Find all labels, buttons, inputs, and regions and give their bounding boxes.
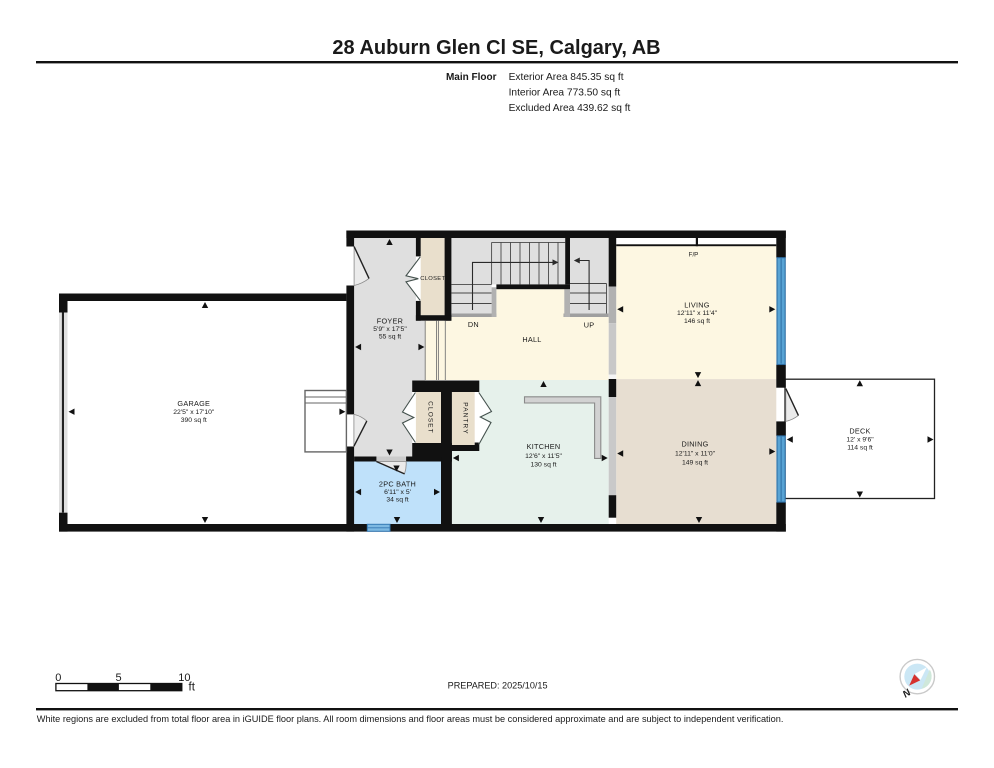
- svg-text:5: 5: [116, 672, 122, 684]
- svg-text:PANTRY: PANTRY: [461, 402, 468, 434]
- svg-text:12'6" x 11'5": 12'6" x 11'5": [525, 453, 562, 460]
- svg-text:130 sq ft: 130 sq ft: [530, 461, 556, 468]
- svg-text:0: 0: [55, 672, 61, 684]
- svg-text:149 sq ft: 149 sq ft: [682, 459, 708, 466]
- svg-text:DECK: DECK: [849, 426, 870, 435]
- svg-text:UP: UP: [584, 321, 595, 330]
- svg-text:146 sq ft: 146 sq ft: [684, 318, 710, 325]
- svg-text:12' x 9'6": 12' x 9'6": [846, 436, 874, 443]
- svg-text:12'11" x 11'4": 12'11" x 11'4": [677, 310, 718, 317]
- svg-text:Interior Area 773.50 sq ft: Interior Area 773.50 sq ft: [509, 87, 621, 98]
- svg-text:390 sq ft: 390 sq ft: [181, 417, 207, 424]
- svg-text:6'11" x 5': 6'11" x 5': [384, 489, 411, 496]
- svg-text:HALL: HALL: [522, 335, 541, 344]
- svg-text:22'5" x 17'10": 22'5" x 17'10": [173, 409, 215, 416]
- svg-text:CLOSET: CLOSET: [426, 401, 433, 434]
- svg-text:ft: ft: [189, 682, 196, 694]
- svg-text:LIVING: LIVING: [684, 301, 709, 310]
- svg-text:PREPARED: 2025/10/15: PREPARED: 2025/10/15: [448, 680, 548, 690]
- svg-text:CLOSET: CLOSET: [420, 276, 445, 282]
- svg-text:55 sq ft: 55 sq ft: [379, 333, 401, 340]
- svg-text:F/P: F/P: [689, 252, 699, 259]
- svg-text:5'9" x 17'5": 5'9" x 17'5": [373, 326, 407, 333]
- svg-text:28 Auburn Glen Cl SE, Calgary,: 28 Auburn Glen Cl SE, Calgary, AB: [332, 37, 660, 59]
- svg-text:DN: DN: [468, 320, 479, 329]
- svg-text:White regions are excluded fro: White regions are excluded from total fl…: [37, 714, 784, 724]
- svg-text:Exterior Area 845.35 sq ft: Exterior Area 845.35 sq ft: [509, 72, 624, 83]
- svg-text:Excluded Area 439.62 sq ft: Excluded Area 439.62 sq ft: [509, 103, 631, 114]
- svg-text:FOYER: FOYER: [377, 316, 403, 325]
- svg-text:114 sq ft: 114 sq ft: [847, 445, 873, 452]
- svg-text:12'11" x 11'0": 12'11" x 11'0": [675, 451, 716, 458]
- svg-text:34 sq ft: 34 sq ft: [386, 496, 408, 503]
- svg-text:GARAGE: GARAGE: [177, 399, 210, 408]
- svg-text:KITCHEN: KITCHEN: [527, 442, 561, 451]
- svg-text:Main Floor: Main Floor: [446, 72, 497, 83]
- svg-text:2PC BATH: 2PC BATH: [379, 479, 416, 488]
- svg-text:DINING: DINING: [681, 440, 708, 449]
